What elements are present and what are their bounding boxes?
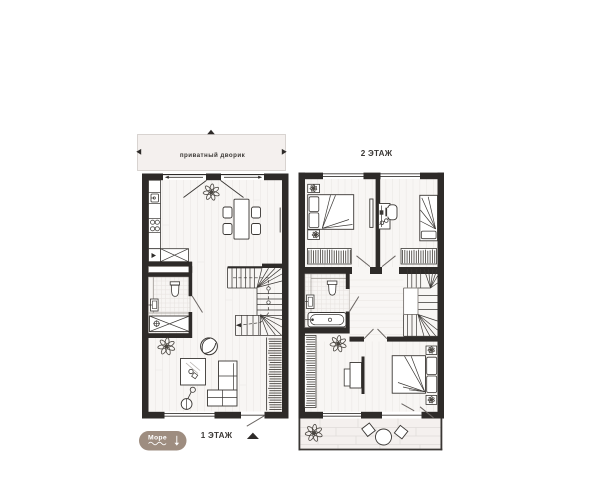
svg-text:2 ЭТАЖ: 2 ЭТАЖ [361,149,393,158]
svg-text:приватный дворик: приватный дворик [180,152,246,159]
svg-text:Море: Море [148,435,167,442]
svg-text:1 ЭТАЖ: 1 ЭТАЖ [201,431,233,440]
